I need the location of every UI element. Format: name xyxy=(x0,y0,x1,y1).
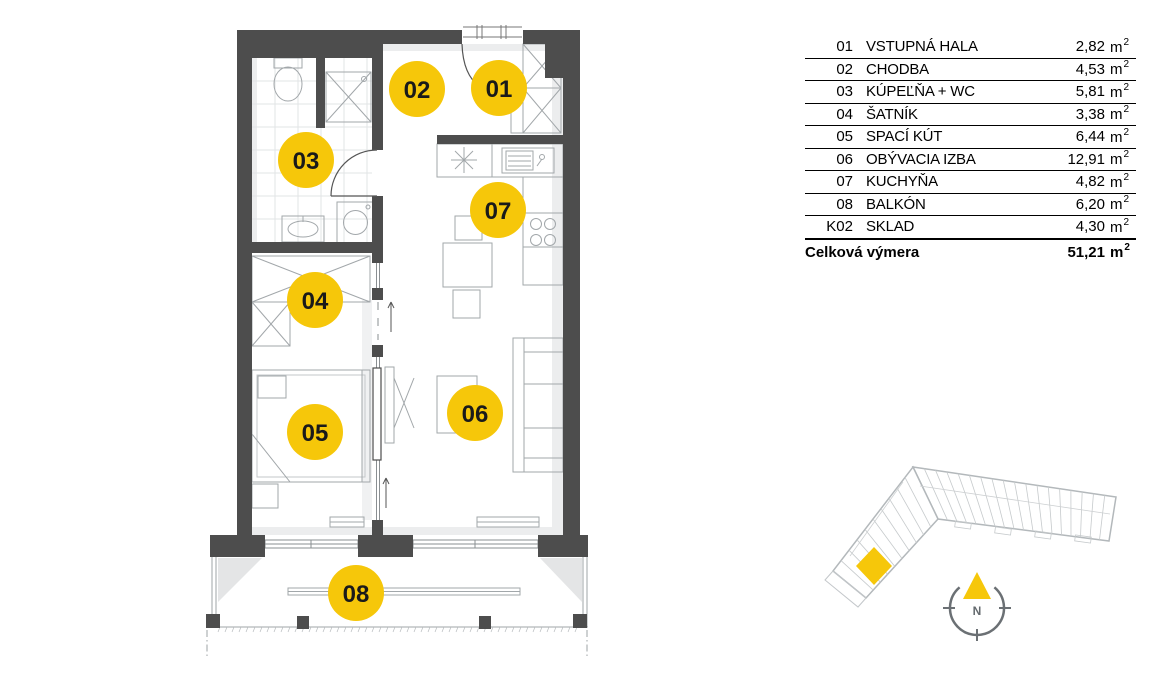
room-code: 07 xyxy=(805,174,866,189)
room-area-unit: m2 xyxy=(1105,174,1136,190)
room-name: KÚPEĽŇA + WC xyxy=(866,84,1053,99)
room-code: 01 xyxy=(805,39,866,54)
room-name: CHODBA xyxy=(866,62,1053,77)
room-area-value: 4,53 xyxy=(1053,62,1105,77)
room-area-value: 3,38 xyxy=(1053,107,1105,122)
room-code: 03 xyxy=(805,84,866,99)
total-area-value: 51,21 xyxy=(1053,245,1105,260)
room-code: 08 xyxy=(805,197,866,212)
room-bubble-03: 03 xyxy=(278,132,334,188)
balcony xyxy=(206,557,588,656)
room-area-value: 5,81 xyxy=(1053,84,1105,99)
room-bubble-label: 03 xyxy=(293,148,320,175)
room-name: VSTUPNÁ HALA xyxy=(866,39,1053,54)
balustrade-hatch xyxy=(218,627,577,632)
area-table-total-row: Celková výmera 51,21 m2 xyxy=(805,238,1136,265)
room-bubble-02: 02 xyxy=(389,61,445,117)
legend-row: 08 BALKÓN 6,20 m2 xyxy=(805,194,1136,217)
room-name: KUCHYŇA xyxy=(866,174,1053,189)
room-bubble-label: 02 xyxy=(404,77,431,104)
area-table: 01 VSTUPNÁ HALA 2,82 m2 02 CHODBA 4,53 m… xyxy=(805,36,1136,265)
sink-icon xyxy=(282,216,324,242)
balcony-table-icon xyxy=(288,588,520,595)
room-code: 06 xyxy=(805,152,866,167)
room-name: ŠATNÍK xyxy=(866,107,1053,122)
glass-partition xyxy=(373,263,381,520)
room-name: BALKÓN xyxy=(866,197,1053,212)
room-bubble-08: 08 xyxy=(328,565,384,621)
washing-machine-icon xyxy=(337,202,374,243)
room-name: OBÝVACIA IZBA xyxy=(866,152,1053,167)
room-bubble-label: 06 xyxy=(462,401,489,428)
room-bubble-07: 07 xyxy=(470,182,526,238)
room-area-unit: m2 xyxy=(1105,39,1136,55)
room-code: 02 xyxy=(805,62,866,77)
legend-row: 02 CHODBA 4,53 m2 xyxy=(805,59,1136,82)
area-table-rows: 01 VSTUPNÁ HALA 2,82 m2 02 CHODBA 4,53 m… xyxy=(805,36,1136,238)
north-label: N xyxy=(973,604,982,618)
compass: N xyxy=(943,572,1011,641)
total-label: Celková výmera xyxy=(805,245,1053,260)
legend-row: 07 KUCHYŇA 4,82 m2 xyxy=(805,171,1136,194)
room-area-value: 6,20 xyxy=(1053,197,1105,212)
legend-row: 06 OBÝVACIA IZBA 12,91 m2 xyxy=(805,149,1136,172)
shower-icon xyxy=(326,72,371,122)
room-name: SPACÍ KÚT xyxy=(866,129,1053,144)
room-bubble-label: 04 xyxy=(302,288,329,315)
room-area-unit: m2 xyxy=(1105,61,1136,77)
legend-row: 04 ŠATNÍK 3,38 m2 xyxy=(805,104,1136,127)
room-bubble-06: 06 xyxy=(447,385,503,441)
room-bubble-label: 07 xyxy=(485,198,512,225)
room-bubble-04: 04 xyxy=(287,272,343,328)
room-area-value: 12,91 xyxy=(1053,152,1105,167)
radiator-icon xyxy=(330,517,539,527)
room-bubble-01: 01 xyxy=(471,60,527,116)
total-area-unit: m2 xyxy=(1105,244,1136,260)
room-area-unit: m2 xyxy=(1105,129,1136,145)
legend-row: K02 SKLAD 4,30 m2 xyxy=(805,216,1136,238)
room-area-unit: m2 xyxy=(1105,196,1136,212)
kitchen-sink-icon xyxy=(502,148,554,173)
room-area-unit: m2 xyxy=(1105,151,1136,167)
room-area-unit: m2 xyxy=(1105,219,1136,235)
cooktop-symbol-icon xyxy=(451,147,477,173)
room-bubble-label: 05 xyxy=(302,420,329,447)
tv-board-icon xyxy=(385,367,414,443)
room-code: 04 xyxy=(805,107,866,122)
room-code: 05 xyxy=(805,129,866,144)
room-area-value: 2,82 xyxy=(1053,39,1105,54)
room-area-value: 4,82 xyxy=(1053,174,1105,189)
north-arrow-icon xyxy=(963,572,991,599)
room-area-unit: m2 xyxy=(1105,106,1136,122)
room-name: SKLAD xyxy=(866,219,1053,234)
legend-row: 05 SPACÍ KÚT 6,44 m2 xyxy=(805,126,1136,149)
room-area-unit: m2 xyxy=(1105,84,1136,100)
room-bubble-label: 01 xyxy=(486,76,513,103)
room-area-value: 6,44 xyxy=(1053,129,1105,144)
legend-row: 01 VSTUPNÁ HALA 2,82 m2 xyxy=(805,36,1136,59)
room-bubble-label: 08 xyxy=(343,581,370,608)
legend-row: 03 KÚPEĽŇA + WC 5,81 m2 xyxy=(805,81,1136,104)
hob-icon xyxy=(531,219,556,246)
room-bubble-05: 05 xyxy=(287,404,343,460)
floorplan-page: { "legend": { "rows": [ {"code":"01","na… xyxy=(0,0,1164,678)
room-code: K02 xyxy=(805,219,866,234)
room-area-value: 4,30 xyxy=(1053,219,1105,234)
